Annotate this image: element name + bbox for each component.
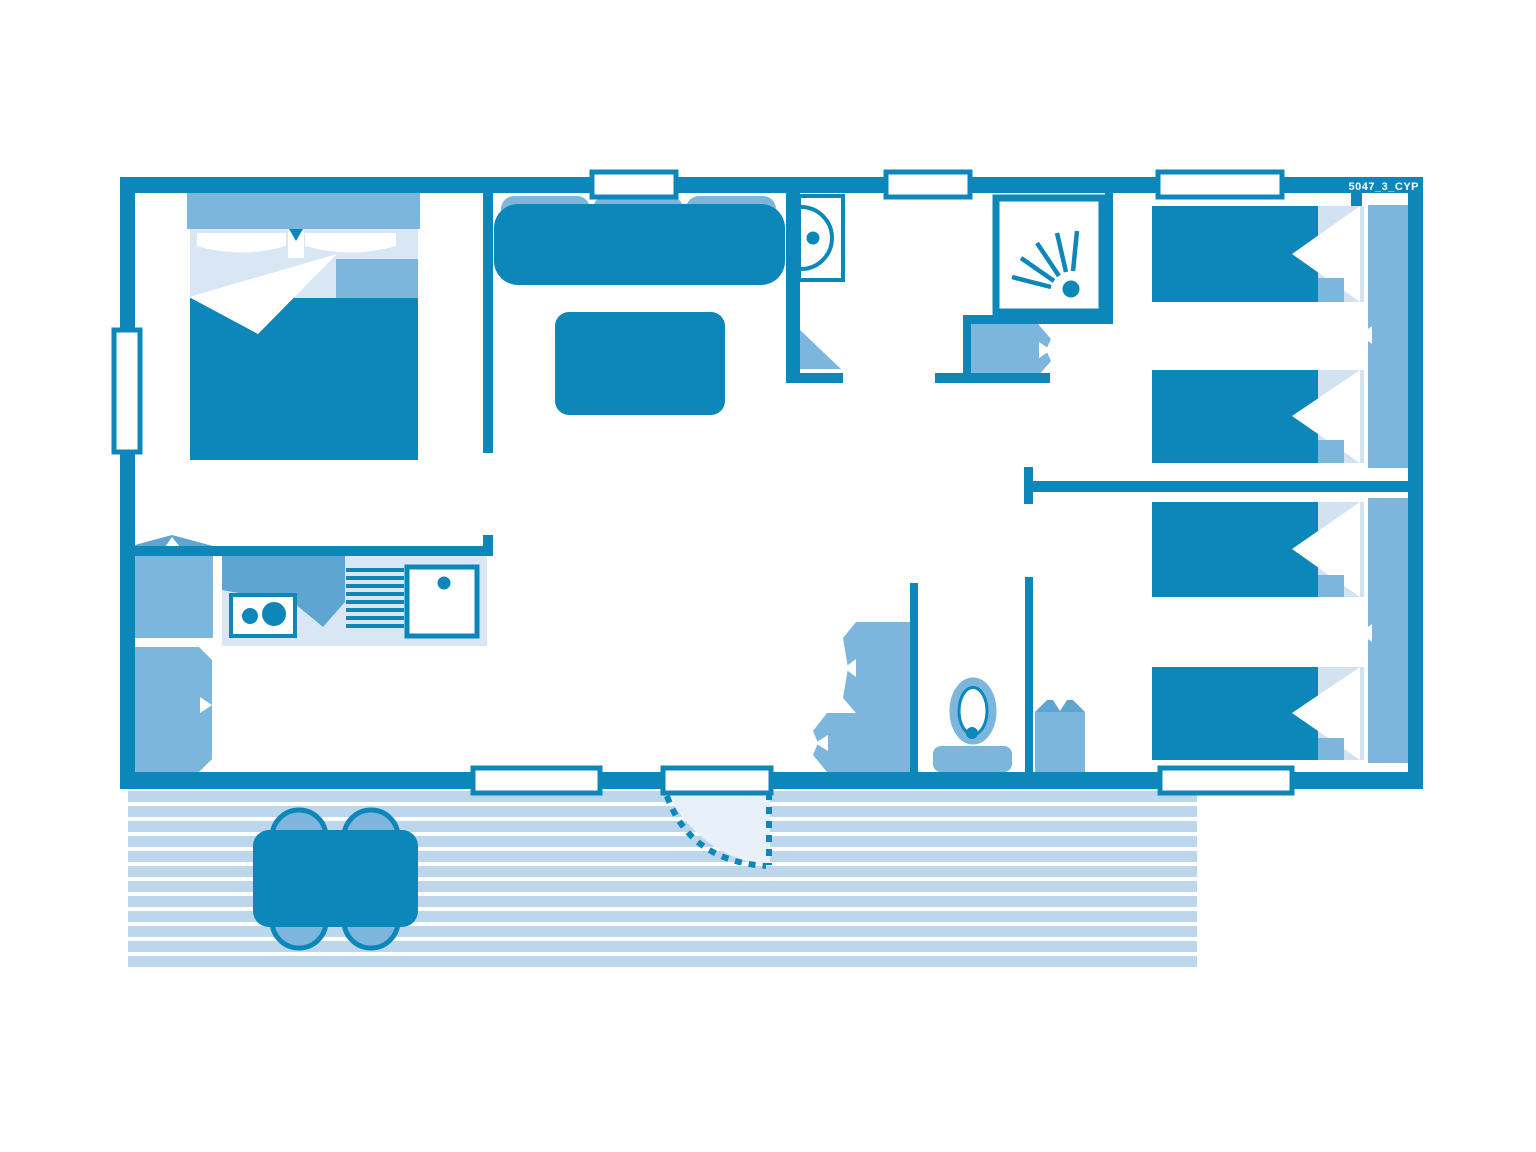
wall-bathroom-cap xyxy=(786,373,843,383)
toilet xyxy=(933,682,1012,772)
sheet-fold xyxy=(1318,738,1344,760)
bathroom xyxy=(799,196,1102,376)
master-bedroom xyxy=(187,193,420,460)
fridge xyxy=(131,546,213,638)
bathroom-cabinet xyxy=(970,324,1051,376)
deck-plank xyxy=(128,956,1197,967)
cabinet-body xyxy=(1035,712,1085,772)
headboard-strip xyxy=(1368,205,1408,468)
bedroom-2 xyxy=(1152,193,1408,468)
sheet-fold xyxy=(1318,278,1344,302)
deck-terrace xyxy=(128,791,1197,967)
single-bed xyxy=(1152,502,1364,597)
small-cabinet xyxy=(1035,700,1085,772)
kitchen xyxy=(131,535,487,772)
entry-door xyxy=(663,768,771,793)
toilet-drain xyxy=(966,727,978,739)
burner xyxy=(242,608,258,624)
headboard-strip xyxy=(1368,498,1408,763)
single-bed xyxy=(1152,667,1364,760)
sheet-fold xyxy=(1318,575,1344,597)
plan-code-label: 5047_3_CYP xyxy=(1349,181,1419,193)
window-top-bedroom2 xyxy=(1158,172,1282,197)
wall-shower-vertical xyxy=(963,315,971,377)
window-bottom-kitchen xyxy=(473,768,600,793)
floorplan-page: 5047_3_CYP xyxy=(0,0,1536,1152)
window-bottom-bedroom3 xyxy=(1160,768,1292,793)
double-bed xyxy=(187,193,420,460)
dining-table xyxy=(253,830,418,927)
exterior-wall-left xyxy=(120,177,135,789)
wall-bedroom1-living xyxy=(483,193,493,453)
wardrobe xyxy=(131,647,212,772)
strip-marker-icon xyxy=(1360,326,1372,344)
coffee-table xyxy=(555,312,725,415)
shower-cabin xyxy=(996,198,1102,312)
sofa xyxy=(494,196,785,285)
wall-bedroom-divider xyxy=(1033,481,1423,492)
strip-marker-icon xyxy=(1360,624,1372,642)
wall-bedroom1-kitchen xyxy=(130,546,493,556)
single-bed xyxy=(1152,206,1364,302)
window-top-bathroom xyxy=(886,172,970,197)
washbasin-drain xyxy=(807,232,820,245)
window-left-bedroom1 xyxy=(114,330,140,452)
wall-wc-left xyxy=(910,583,918,772)
sink-drain xyxy=(438,577,451,590)
toilet-cistern xyxy=(933,746,1012,772)
bed-blanket xyxy=(190,298,418,460)
burner xyxy=(262,602,286,626)
living-room xyxy=(494,196,785,415)
wall-divider-endcap xyxy=(1024,467,1033,504)
mobile-home-floorplan: 5047_3_CYP xyxy=(0,0,1536,1152)
bed-sheet-fold xyxy=(336,259,418,299)
wc-area xyxy=(813,622,1085,772)
wall-hall-cap xyxy=(935,373,1050,383)
bedroom-3 xyxy=(1152,498,1408,763)
wall-shower-right xyxy=(1105,193,1113,323)
sheet-fold xyxy=(1318,440,1344,463)
wall-shower-bottom xyxy=(963,315,1113,324)
bathroom-door-wedge xyxy=(800,330,841,369)
wall-bathroom-left xyxy=(786,193,800,383)
wall-wc-right xyxy=(1025,577,1033,772)
bed-headboard xyxy=(187,193,420,229)
window-top-living xyxy=(592,172,676,197)
single-bed xyxy=(1152,370,1364,463)
sofa-seat xyxy=(494,204,785,285)
